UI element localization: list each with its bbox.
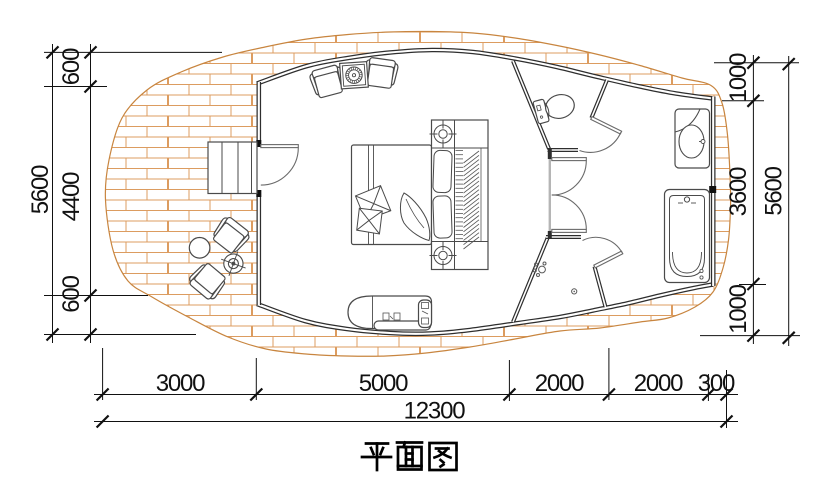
svg-text:600: 600: [58, 275, 85, 312]
svg-text:3000: 3000: [156, 370, 205, 397]
svg-text:3600: 3600: [725, 167, 752, 216]
svg-text:12300: 12300: [404, 398, 466, 425]
svg-text:300: 300: [698, 370, 735, 397]
svg-text:1000: 1000: [725, 53, 752, 102]
svg-text:5600: 5600: [27, 165, 54, 214]
svg-text:2000: 2000: [535, 370, 584, 397]
svg-text:600: 600: [58, 48, 85, 85]
svg-text:1000: 1000: [725, 284, 752, 333]
svg-text:4400: 4400: [58, 172, 85, 221]
svg-text:2000: 2000: [634, 370, 683, 397]
svg-text:5600: 5600: [761, 166, 788, 215]
svg-text:5000: 5000: [359, 370, 408, 397]
